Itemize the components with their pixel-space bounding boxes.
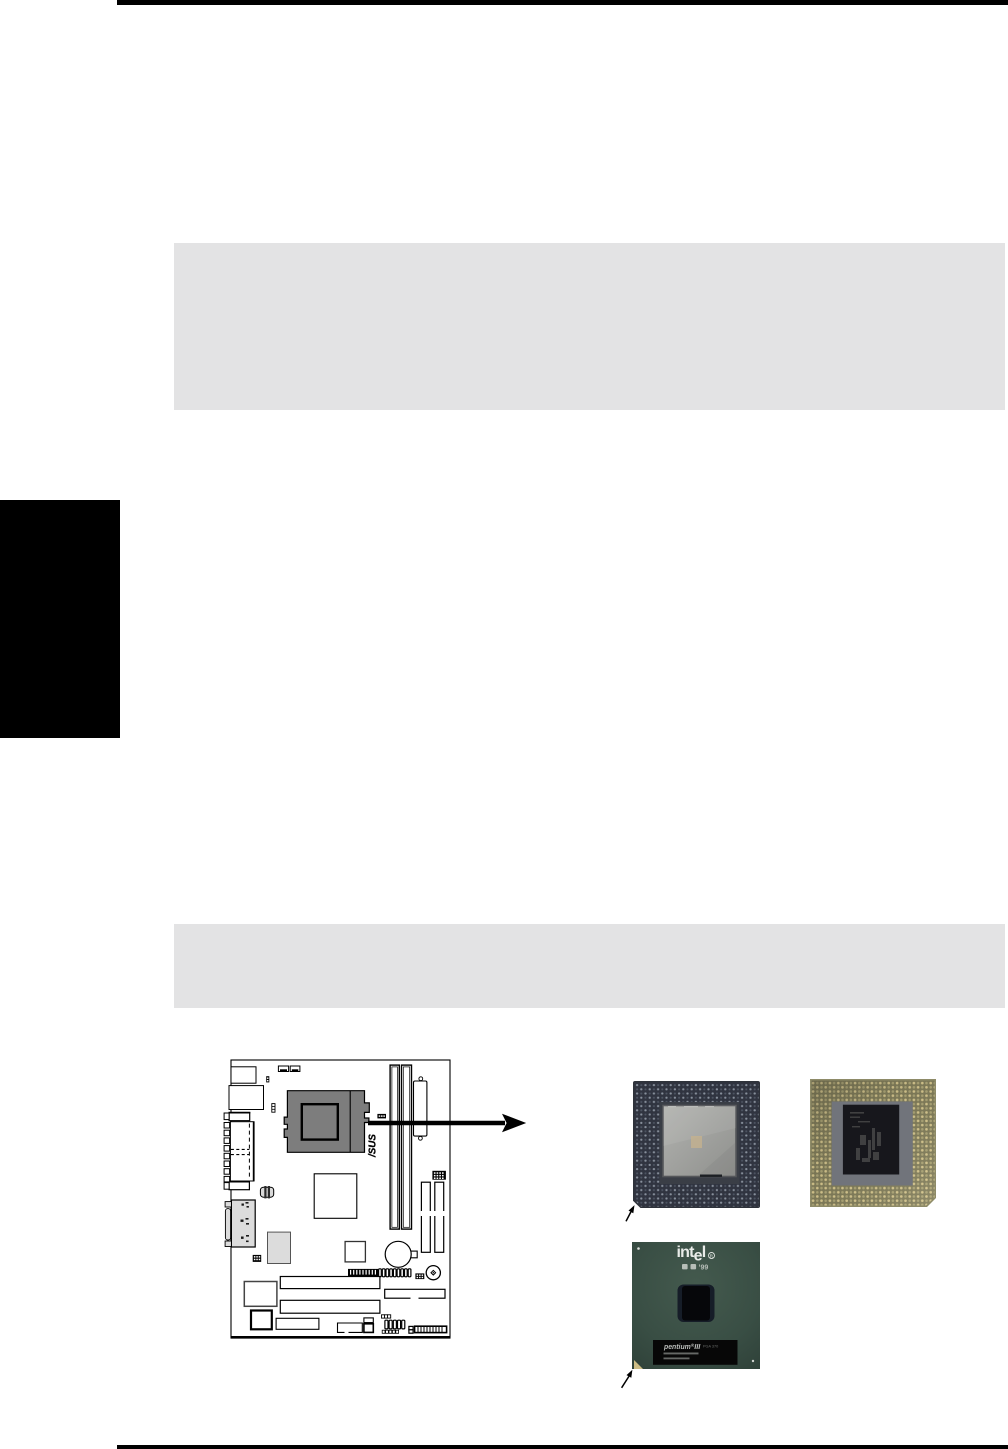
- svg-text:/SUS: /SUS: [368, 1134, 379, 1158]
- svg-text:PGA 370: PGA 370: [703, 1345, 718, 1349]
- svg-text:pentium®III: pentium®III: [663, 1342, 701, 1351]
- svg-text:R: R: [710, 1254, 713, 1259]
- svg-text:’99: ’99: [699, 1264, 709, 1271]
